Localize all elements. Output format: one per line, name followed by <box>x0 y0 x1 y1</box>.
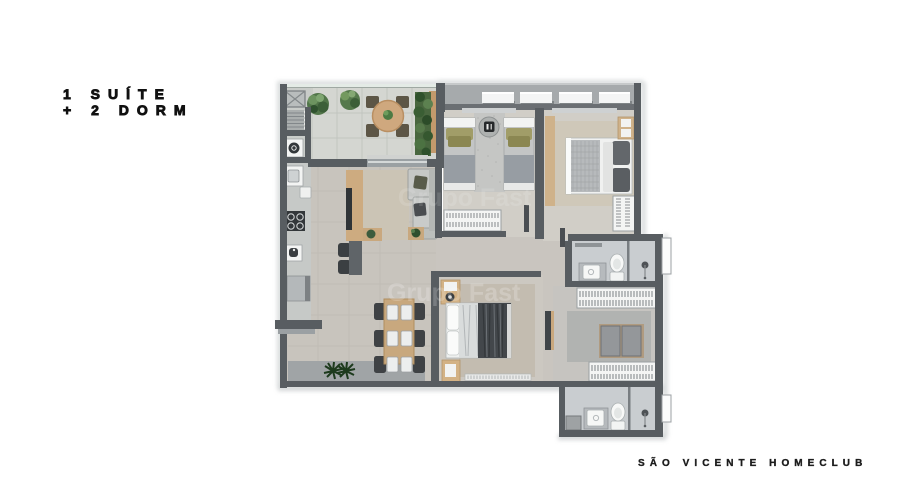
svg-text:+ 2 DORM: + 2 DORM <box>63 102 194 118</box>
svg-text:Grupo Fast: Grupo Fast <box>398 184 532 212</box>
svg-text:1 SUÍTE: 1 SUÍTE <box>63 86 172 102</box>
svg-text:SÃO VICENTE HOMECLUB: SÃO VICENTE HOMECLUB <box>638 456 867 469</box>
svg-text:Grupo Fast: Grupo Fast <box>387 279 521 307</box>
